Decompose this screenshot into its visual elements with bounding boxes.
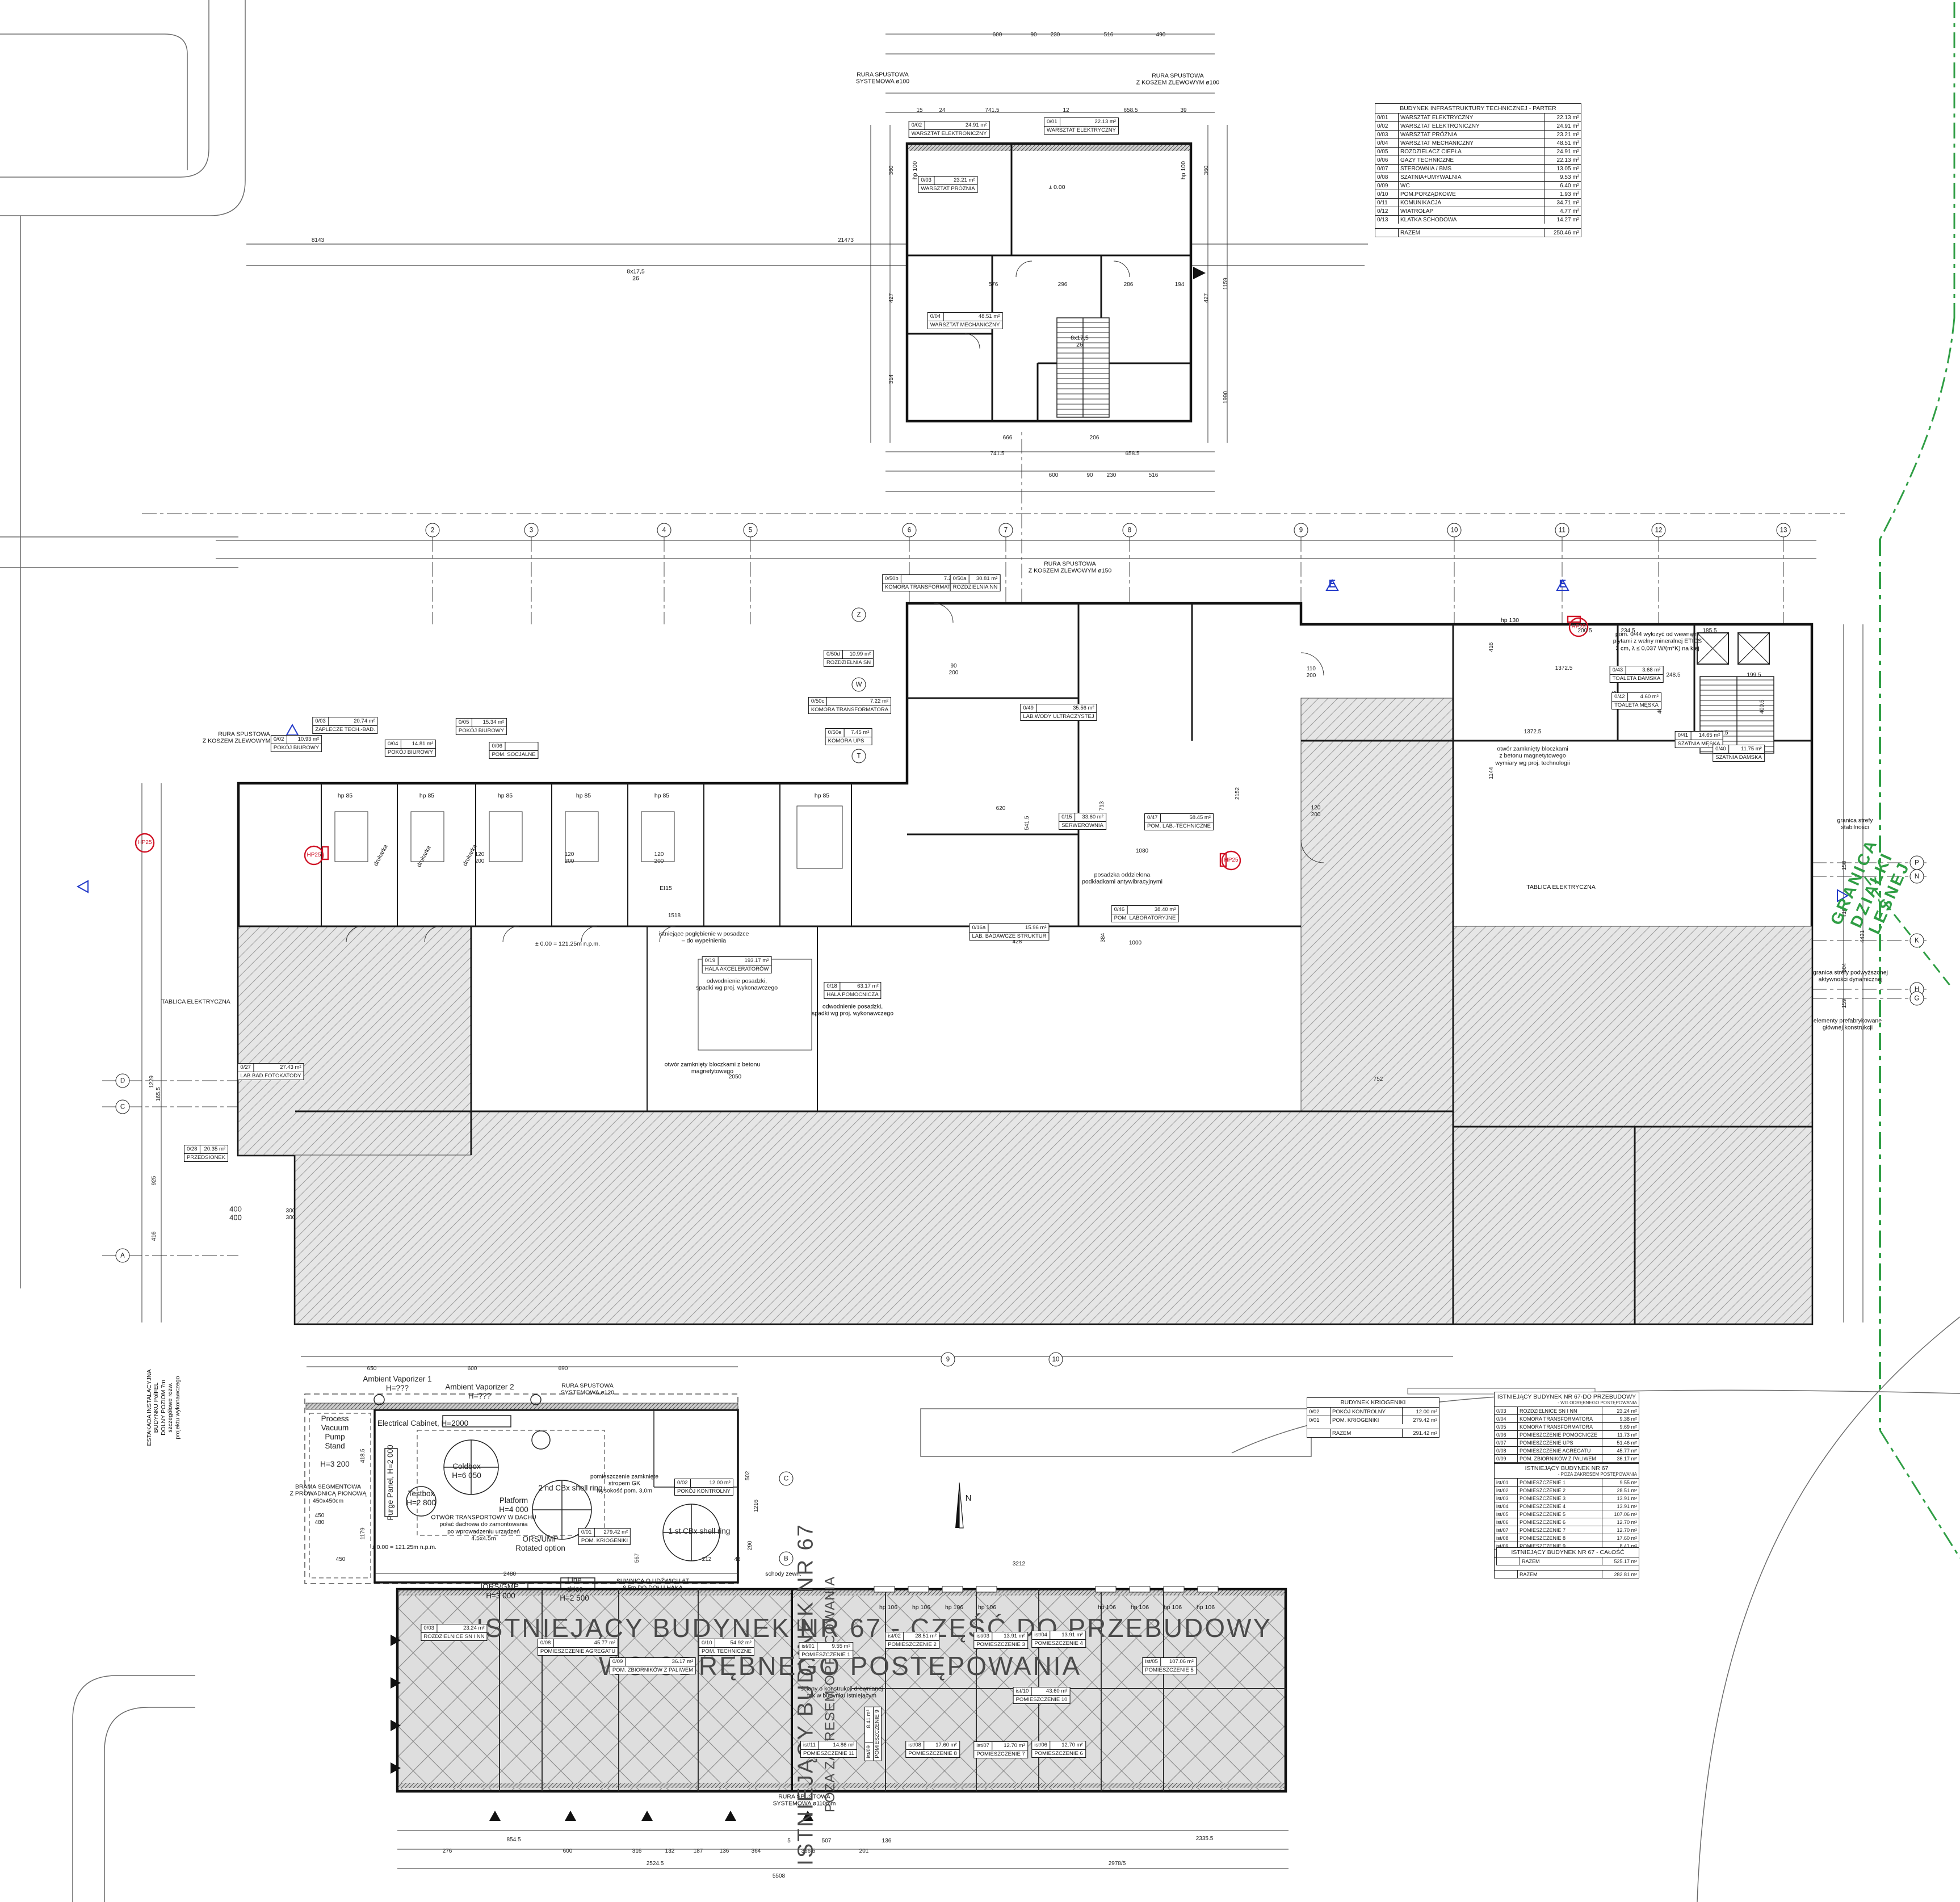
dimension-text: 416 (1488, 643, 1495, 652)
room-number: 0/02 (271, 736, 287, 744)
room-name: POKÓJ KONTROLNY (675, 1488, 733, 1496)
room-area: 15.34 m² (479, 719, 506, 727)
dimension-text: 43 (734, 1556, 740, 1563)
room-number: ist/08 (906, 1741, 924, 1749)
room-name: ROZDZIELNIA NN (951, 583, 1000, 591)
annotation: hp 100 (912, 161, 918, 179)
room-label: 0/16a15.96 m² LAB. BADAWCZE STRUKTUR (969, 923, 1049, 940)
room-name: POMIESZCZENIE 6 (1032, 1750, 1085, 1758)
dimension-text: HP25 (1224, 857, 1238, 864)
room-number: 0/03 (918, 177, 934, 184)
dimension-text: 490 (1156, 32, 1166, 39)
room-number: ist/01 (799, 1643, 817, 1651)
grid-axis-bubble: 8 (1123, 523, 1137, 538)
dimension-text: 2335.5 (1196, 1836, 1214, 1842)
annotation: elementy prefabrykowane głównej konstruk… (1814, 1018, 1882, 1032)
room-name: HALA POMOCNICZA (824, 991, 880, 999)
room-area: 13.91 m² (1058, 1631, 1085, 1639)
room-area: 10.93 m² (294, 736, 321, 744)
room-area: 193.17 m² (742, 957, 771, 965)
room-number: 0/04 (928, 313, 944, 321)
room-label: 0/0122.13 m² WARSZTAT ELEKTRYCZNY (1044, 117, 1119, 135)
room-name: POMIESZCZENIE 4 (1032, 1640, 1085, 1648)
dimension-text: 5 (787, 1838, 791, 1845)
table-row: 0/07POMIESZCZENIE UPS51.46 m² (1495, 1439, 1639, 1447)
table-total-row: RAZEM282.81 m² (1495, 1570, 1639, 1578)
room-area: 14.86 m² (829, 1741, 857, 1749)
dimension-text: 120 200 (475, 851, 485, 865)
room-name: WARSZTAT MECHANICZNY (928, 321, 1002, 329)
annotation: hp 106 (1098, 1604, 1116, 1611)
grid-axis-bubble: 9 (941, 1353, 955, 1367)
room-name: POM. LABORATORYJNE (1112, 914, 1178, 922)
dimension-text: 502 (745, 1471, 752, 1481)
room-name: POKÓJ BIUROWY (456, 727, 506, 735)
room-area: 12.70 m² (1058, 1741, 1085, 1749)
grid-axis-bubble: 13 (1777, 523, 1791, 538)
dimension-text: 1518 (668, 913, 681, 919)
table-row: 0/09POM. ZBIORNIKÓW Z PALIWEM36.17 m² (1495, 1455, 1639, 1463)
room-number: 0/04 (385, 740, 401, 748)
room-label: ist/1114.86 m² POMIESZCZENIE 11 (800, 1741, 857, 1758)
room-number: 0/10 (699, 1639, 715, 1647)
dimension-text: 8143 (312, 237, 324, 244)
dimension-text: 12 (1063, 107, 1069, 114)
grid-axis-bubble: 9 (1294, 523, 1308, 538)
forest-parcel-boundary (1865, 2, 1960, 1558)
existing-building-vertical-title: ISTNIEJĄCY BUDYNEK NR 67 (794, 1523, 819, 1865)
dimension-text: 304 (1841, 963, 1848, 973)
dimension-text: 1159 (1223, 278, 1229, 290)
room-number: 0/18 (824, 983, 840, 990)
annotation: TABLICA ELEKTRYCZNA (1526, 884, 1596, 891)
room-name: POMIESZCZENIE 3 (974, 1641, 1027, 1649)
dimension-text: 600 (563, 1848, 573, 1855)
room-name: POMIESZCZENIE 1 (799, 1651, 853, 1659)
room-area: 48.51 m² (975, 313, 1002, 321)
equipment-label: Platform H=4 000 (499, 1496, 528, 1514)
room-label: 0/1533.60 m² SERWEROWNIA (1059, 813, 1106, 830)
room-number: 0/05 (456, 719, 472, 727)
dimension-text: 132 (665, 1848, 675, 1855)
equipment-label: Ambient Vaporizer 1 H=??? (363, 1375, 431, 1393)
room-name: POM. KRIOGENIKI (579, 1537, 630, 1545)
table-67-total-areas: ISTNIEJĄCY BUDYNEK NR 67 - CAŁOŚĆ RAZEM5… (1496, 1547, 1639, 1565)
room-area: 28.51 m² (912, 1632, 939, 1640)
room-label: 0/0323.24 m² ROZDZIELNICE SN I NN (421, 1624, 487, 1641)
dimension-text: 1000 (1129, 940, 1141, 947)
room-number: 0/19 (703, 957, 719, 965)
annotation: hp 130 (1501, 617, 1519, 624)
table-title: ISTNIEJĄCY BUDYNEK NR 67- POZA ZAKRESEM … (1495, 1464, 1639, 1479)
dimension-text: 165.5 (156, 1087, 162, 1101)
room-area: 13.91 m² (1000, 1632, 1027, 1640)
room-number: ist/09 (865, 1743, 873, 1761)
table-total-row: RAZEM250.46 m² (1375, 228, 1581, 237)
room-number: 0/28 (184, 1145, 200, 1153)
room-label: 0/0212.00 m² POKÓJ KONTROLNY (674, 1479, 733, 1496)
room-number: 0/46 (1112, 906, 1128, 914)
table-row: 0/06GAZY TECHNICZNE22.13 m² (1375, 156, 1581, 165)
table-row: 0/05ROZDZIELACZ CIEPŁA24.91 m² (1375, 148, 1581, 156)
table-row: 0/05KOMORA TRANSFORMATORA9.69 m² (1495, 1423, 1639, 1431)
dimension-text: 234.5 (1621, 628, 1635, 635)
room-name: WARSZTAT PRÓŻNIA (918, 185, 977, 193)
equipment-label: ORS/GMP H=3 000 (482, 1582, 519, 1601)
room-label: 0/4011.75 m² SZATNIA DAMSKA (1713, 745, 1765, 762)
annotation: otwór zamknięty bloczkami z betonu magne… (1495, 745, 1569, 766)
dimension-text: 400 400 (229, 1205, 242, 1223)
grid-axis-bubble: 10 (1447, 523, 1462, 538)
dimension-text: 158 (1841, 861, 1848, 871)
room-area: 4.60 m² (1634, 693, 1661, 701)
annotation: hp 106 (945, 1604, 963, 1611)
room-area: 7.45 m² (844, 729, 871, 737)
annotation: SUWNICA O UDŹWIGU 6T 8,5m DO DOŁU HAKA (616, 1578, 689, 1592)
dimension-text: 658.5 (1123, 107, 1138, 114)
grid-axis-bubble: 3 (524, 523, 539, 538)
room-area: 20.35 m² (200, 1145, 228, 1153)
room-area: 33.60 m² (1078, 813, 1106, 821)
dimension-text: 21473 (838, 237, 854, 244)
room-area: 12.70 m² (1000, 1742, 1027, 1750)
grid-axis-bubble: P (1910, 856, 1924, 870)
room-label: 0/4638.40 m² POM. LABORATORYJNE (1111, 905, 1179, 922)
dimension-text: 316 (632, 1848, 642, 1855)
room-label: 0/4758.45 m² POM. LAB.-TECHNICZNE (1144, 813, 1214, 830)
table-row: 0/06POMIESZCZENIE POMOCNICZE11.73 m² (1495, 1431, 1639, 1439)
annotation: hp 106 (1197, 1604, 1215, 1611)
room-number: ist/11 (801, 1741, 819, 1749)
dimension-text: 199.5 (1747, 672, 1761, 679)
grid-axis-bubble: K (1910, 934, 1924, 948)
room-area: 3.68 m² (1635, 666, 1663, 674)
dimension-text: 600 (468, 1366, 477, 1372)
dimension-text: HP25 (137, 839, 152, 846)
main-building (142, 540, 1863, 1357)
dimension-text: 90 200 (949, 663, 959, 677)
dimension-text: 690 (559, 1366, 568, 1372)
room-area: 23.21 m² (950, 177, 977, 184)
table-row: ist/06POMIESZCZENIE 612.70 m² (1495, 1518, 1639, 1526)
dimension-text: 450 (336, 1556, 346, 1563)
room-name: POMIESZCZENIE 11 (801, 1750, 857, 1758)
dimension-text: 360 (1203, 166, 1210, 175)
dimension-text: 541.5 (1024, 816, 1031, 830)
annotation: posadzka oddzielona podkładkami antywibr… (1082, 872, 1162, 886)
annotation: hp 106 (879, 1604, 897, 1611)
grid-axis-bubble: B (779, 1552, 794, 1566)
room-area: 17.60 m² (932, 1741, 959, 1749)
annotation: RURA SPUSTOWA Z KOSZEM ZLEWOWYM ø100 (1136, 73, 1219, 87)
floor-plan-canvas: 0/0224.91 m² WARSZTAT ELEKTRONICZNY 0/01… (0, 0, 1960, 1902)
dimension-text: 400.5 (1759, 699, 1766, 713)
grid-axis-bubble: G (1910, 992, 1924, 1006)
dimension-text: 39 (1180, 107, 1186, 114)
annotation: hp 85 (419, 792, 434, 799)
dimension-text: 658.5 (1125, 451, 1139, 457)
room-label: 0/50d10.99 m² ROZDZIELNIA SN (824, 650, 874, 667)
room-number: 0/49 (1021, 704, 1036, 712)
room-area: 45.77 m² (590, 1639, 618, 1647)
table-row: ist/08POMIESZCZENIE 817.60 m² (1495, 1534, 1639, 1542)
room-area: 7.22 m² (863, 698, 891, 706)
annotation: odwodnienie posadzki, spadki wg proj. wy… (812, 1004, 893, 1018)
room-name: POM. SOCJALNE (489, 751, 538, 759)
room-label: 0/06 POM. SOCJALNE (489, 742, 538, 759)
dimension-text: 650 (367, 1366, 377, 1372)
dimension-text: 2050 (729, 1074, 741, 1081)
room-label: ist/098.41 m² POMIESZCZENIE 9 (864, 1707, 882, 1761)
room-label: 0/0936.17 m² POM. ZBIORNIKÓW Z PALIWEM (610, 1657, 696, 1674)
dimension-text: 120 200 (565, 851, 574, 865)
table-row: 0/02POKÓJ KONTROLNY12.00 m² (1307, 1408, 1439, 1416)
table-row: 0/01WARSZTAT ELEKTRYCZNY22.13 m² (1375, 114, 1581, 122)
dimension-text: 136 (882, 1838, 892, 1845)
table-row: ist/04POMIESZCZENIE 413.91 m² (1495, 1502, 1639, 1510)
dimension-text: 1144 (1488, 767, 1495, 779)
room-number: 0/50b (883, 575, 901, 583)
grid-axis-bubble: D (116, 1074, 130, 1088)
existing-building-vertical-subtitle: POZA ZAKRESEM OPRACOWANIA (822, 1576, 838, 1812)
room-name: POMIESZCZENIE 8 (906, 1750, 959, 1758)
room-name: WARSZTAT ELEKTRYCZNY (1044, 127, 1118, 135)
annotation: TABLICA ELEKTRYCZNA (161, 998, 230, 1005)
room-area: 38.40 m² (1151, 906, 1178, 914)
table-row: 0/10POM.PORZĄDKOWE1.93 m² (1375, 190, 1581, 199)
room-area: 279.42 m² (601, 1529, 630, 1536)
dimension-text: 3212 (1013, 1561, 1025, 1568)
room-area: 27.43 m² (276, 1064, 304, 1072)
room-label: 0/0448.51 m² WARSZTAT MECHANICZNY (927, 312, 1003, 329)
table-row: ist/05POMIESZCZENIE 5107.06 m² (1495, 1510, 1639, 1518)
room-label: ist/05107.06 m² POMIESZCZENIE 5 (1142, 1657, 1197, 1674)
annotation: EI15 (660, 885, 672, 892)
annotation: ESTAKADA INSTALACYJNA BUDYNKU PolFEL DOL… (146, 1370, 181, 1446)
room-name: ROZDZIELNICE SN I NN (421, 1633, 486, 1641)
table-total-row: RAZEM525.17 m² (1497, 1557, 1639, 1565)
table-row: 0/03WARSZTAT PRÓŻNIA23.21 m² (1375, 131, 1581, 139)
dimension-text: 300 300 (286, 1208, 296, 1221)
dimension-text: 752 (1374, 1076, 1383, 1083)
dimension-text: 1229 (149, 1076, 156, 1088)
table-row: 0/03ROZDZIELNICE SN I NN23.24 m² (1495, 1407, 1639, 1415)
room-name: WARSZTAT ELEKTRONICZNY (909, 130, 989, 138)
annotation: hp 85 (338, 792, 352, 799)
room-name: POM. TECHNICZNE (699, 1648, 754, 1656)
annotation: odwodnienie posadzki, spadki wg proj. wy… (696, 978, 778, 992)
room-label: 0/433.68 m² TOALETA DAMSKA (1610, 666, 1664, 683)
room-area: 10.99 m² (846, 650, 873, 658)
room-number: 0/08 (538, 1639, 554, 1647)
room-name: HALA AKCELERATORÓW (703, 965, 771, 973)
room-name: LAB.WODY ULTRACZYSTEJ (1021, 713, 1096, 721)
table-row: 0/11KOMUNIKACJA34.71 m² (1375, 199, 1581, 207)
annotation: ± 0.00 = 121.25m n.p.m. (535, 940, 600, 947)
table-row: 0/13KLATKA SCHODOWA14.27 m² (1375, 216, 1581, 224)
grid-axis-bubble: 12 (1652, 523, 1666, 538)
dimension-text: E (1329, 578, 1336, 591)
room-name: POMIESZCZENIE 7 (974, 1750, 1027, 1758)
dimension-text: HP25 (307, 852, 321, 859)
room-number: 0/01 (579, 1529, 595, 1536)
dimension-text: 418.5 (360, 1448, 367, 1463)
room-number: ist/04 (1032, 1631, 1050, 1639)
room-label: ist/0313.91 m² POMIESZCZENIE 3 (973, 1632, 1028, 1649)
room-area: 24.91 m² (962, 121, 989, 129)
table-row: 0/02WARSZTAT ELEKTRONICZNY24.91 m² (1375, 122, 1581, 131)
annotation: 8x17,5 26 (1071, 335, 1089, 349)
dimension-text: N (966, 1493, 972, 1504)
room-area: 20.74 m² (350, 717, 377, 725)
room-label: ist/0413.91 m² POMIESZCZENIE 4 (1031, 1631, 1086, 1648)
dimension-text: 276 (443, 1848, 452, 1855)
room-label: 0/01279.42 m² POM. KRIOGENIKI (578, 1528, 631, 1545)
table-row: ist/01POMIESZCZENIE 19.55 m² (1495, 1479, 1639, 1487)
grid-axis-bubble: 11 (1555, 523, 1569, 538)
dimension-text: 576 (989, 282, 998, 288)
room-name: POMIESZCZENIE 2 (885, 1641, 939, 1649)
dimension-text: 427 (888, 293, 895, 303)
room-number: 0/50d (824, 650, 843, 658)
room-area: 58.45 m² (1186, 814, 1213, 822)
table-total-row: RAZEM291.42 m² (1307, 1429, 1439, 1437)
dimension-text: 427 (1203, 293, 1210, 303)
grid-axis-bubble: 6 (903, 523, 917, 538)
grid-axis-bubble: 7 (999, 523, 1013, 538)
room-area: 30.81 m² (972, 575, 1000, 583)
room-area: 15.96 m² (1022, 924, 1049, 932)
room-label: 0/50c7.22 m² KOMORA TRANSFORMATORA (808, 697, 891, 714)
dimension-text: 24 (939, 107, 945, 114)
room-number: 0/01 (1044, 118, 1060, 126)
room-label: 0/1863.17 m² HALA POMOCNICZA (824, 982, 881, 999)
room-number: 0/42 (1612, 693, 1628, 701)
room-number: 0/03 (313, 717, 329, 725)
room-name: POKÓJ BIUROWY (271, 744, 321, 752)
room-number: 0/16a (969, 924, 988, 932)
room-area: 63.17 m² (854, 983, 881, 990)
grid-axis-bubble: W (852, 678, 866, 692)
room-name: ROZDZIELNIA SN (824, 659, 873, 667)
dimension-text: E (1559, 578, 1567, 591)
room-number: ist/05 (1143, 1658, 1161, 1666)
dimension-text: 741.5 (985, 107, 999, 114)
room-area: 8.41 m² (865, 1707, 873, 1735)
room-number: 0/15 (1059, 813, 1075, 821)
equipment-label: 1 st CBx shell ring (669, 1527, 731, 1536)
room-label: 0/0414.81 m² POKÓJ BIUROWY (385, 740, 436, 757)
room-label: 0/2820.35 m² PRZEDSIONEK (184, 1145, 228, 1162)
dimension-text: 159 (1841, 999, 1848, 1009)
annotation: ± 0.00 (1048, 184, 1065, 191)
grid-axis-bubble: 4 (657, 523, 671, 538)
room-label: 0/0323.21 m² WARSZTAT PRÓŻNIA (918, 176, 977, 193)
equipment-label: 2 nd CBx shell ring (538, 1484, 602, 1493)
dimension-text: 230 (1107, 472, 1117, 479)
room-area: 36.17 m² (668, 1658, 695, 1666)
dimension-text: 1179 (360, 1527, 367, 1540)
dimension-text: 110 200 (1307, 666, 1316, 679)
table-row: ist/02POMIESZCZENIE 228.51 m² (1495, 1487, 1639, 1494)
dimension-text: 290 (747, 1541, 754, 1551)
table-row: ist/03POMIESZCZENIE 313.91 m² (1495, 1494, 1639, 1502)
room-number: 0/43 (1610, 666, 1626, 674)
table-row: ist/07POMIESZCZENIE 712.70 m² (1495, 1526, 1639, 1534)
table-title: BUDYNEK INFRASTRUKTURY TECHNICZNEJ - PAR… (1375, 104, 1581, 114)
dimension-text: 516 (1104, 32, 1114, 39)
room-number: 0/06 (489, 742, 505, 750)
room-number: 0/03 (421, 1624, 437, 1632)
dimension-text: 296 (1058, 282, 1068, 288)
room-number: 0/50c (809, 698, 827, 706)
dimension-text: 1372.5 (1524, 729, 1542, 736)
room-area: 35.56 m² (1069, 704, 1097, 712)
room-area: 14.81 m² (408, 740, 435, 748)
dimension-text: 1990 (1223, 391, 1229, 404)
room-name: LAB. BADAWCZE STRUKTUR (969, 933, 1048, 940)
room-number: ist/07 (974, 1742, 992, 1750)
annotation: granica strefy podwyższonej aktywności d… (1813, 969, 1888, 984)
dimension-text: 666 (1003, 435, 1013, 442)
annotation: hp 85 (498, 792, 513, 799)
room-label: 0/424.60 m² TOALETA MĘSKA (1611, 692, 1661, 709)
room-area: 107.06 m² (1167, 1658, 1196, 1666)
table-row: 0/04WARSZTAT MECHANICZNY48.51 m² (1375, 139, 1581, 148)
dimension-text: 201 (859, 1848, 869, 1855)
dimension-text: 230 (1051, 32, 1060, 39)
room-name: TOALETA DAMSKA (1610, 675, 1663, 683)
annotation: BRAMA SEGMENTOWA Z PROWADNICĄ PIONOWĄ 45… (290, 1483, 367, 1504)
table-cryo-areas: BUDYNEK KRIOGENIKI 0/02POKÓJ KONTROLNY12… (1307, 1397, 1439, 1438)
room-label: 0/0845.77 m² POMIESZCZENIE AGREGATU (538, 1639, 618, 1656)
annotation: hp 85 (576, 792, 591, 799)
table-title: BUDYNEK KRIOGENIKI (1307, 1398, 1439, 1408)
annotation: hp 106 (912, 1604, 930, 1611)
table-row: 0/08SZATNIA+UMYWALNIA9.53 m² (1375, 173, 1581, 182)
room-number: 0/40 (1713, 745, 1729, 753)
annotation: hp 106 (1131, 1604, 1149, 1611)
annotation: 8x17,5 26 (627, 268, 645, 283)
equipment-label: Testbox H=2 800 (406, 1489, 435, 1508)
room-name: TOALETA MĘSKA (1612, 702, 1661, 709)
room-number: 0/27 (238, 1064, 254, 1072)
annotation: RURA SPUSTOWA SYSTEMOWA ø100 (856, 72, 909, 86)
table-title: ISTNIEJĄCY BUDYNEK NR 67-DO PRZEBUDOWY- … (1495, 1392, 1639, 1407)
room-name: SERWEROWNIA (1059, 822, 1106, 830)
room-name: ZAPLECZE TECH.-BAD. (313, 726, 377, 734)
room-number: ist/06 (1032, 1741, 1050, 1749)
room-area: 14.65 m² (1695, 732, 1722, 740)
room-area: 9.55 m² (825, 1643, 853, 1651)
annotation: hp 106 (978, 1604, 996, 1611)
room-label: 0/0210.93 m² POKÓJ BIUROWY (271, 735, 322, 752)
room-area: 43.60 m² (1042, 1687, 1069, 1695)
equipment-label: Coldbox H=6 050 (452, 1462, 481, 1480)
room-name: KOMORA TRANSFORMATORA (809, 706, 891, 714)
infra-building (871, 34, 1227, 492)
dimension-text: 1080 (1136, 848, 1148, 855)
dimension-text: 1372.5 (1555, 665, 1573, 672)
table-row: 0/01POM. KRIOGENIKI279.42 m² (1307, 1416, 1439, 1424)
dimension-text: 516 (1149, 472, 1159, 479)
dimension-text: 1216 (753, 1500, 760, 1512)
room-name: KOMORA UPS (826, 737, 872, 745)
room-label: 0/0224.91 m² WARSZTAT ELEKTRONICZNY (909, 121, 990, 138)
room-number: 0/50a (951, 575, 969, 583)
room-name: LAB.BAD.FOTOKATODY (238, 1072, 303, 1080)
dimension-text: 120 200 (654, 851, 664, 865)
